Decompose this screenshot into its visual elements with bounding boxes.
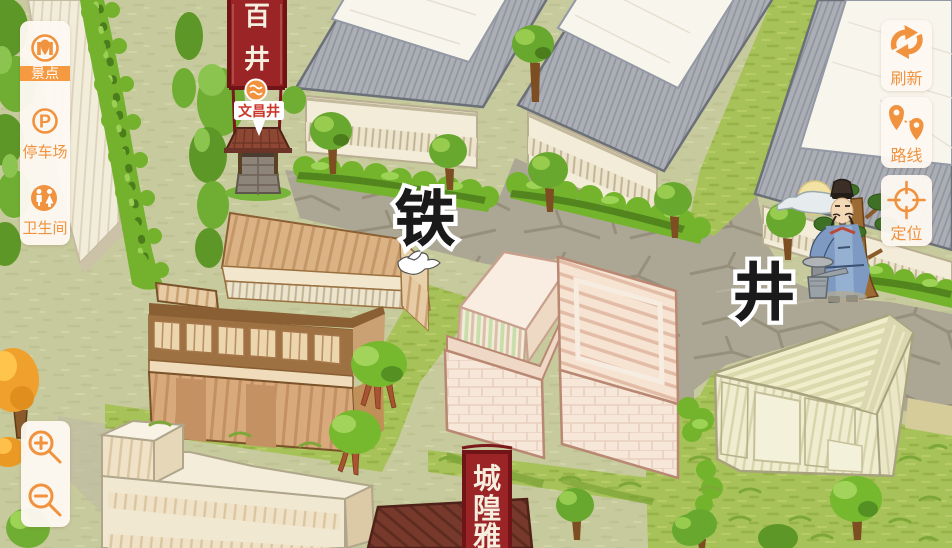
svg-text:雅: 雅 (473, 521, 501, 548)
svg-text:百: 百 (244, 2, 270, 31)
svg-text:铁: 铁 (395, 186, 455, 253)
svg-text:P: P (39, 112, 51, 132)
svg-text:井: 井 (733, 259, 795, 328)
svg-text:文昌井: 文昌井 (238, 103, 280, 119)
svg-text:城: 城 (473, 463, 501, 495)
svg-text:隍: 隍 (473, 493, 501, 525)
svg-text:井: 井 (244, 45, 270, 74)
